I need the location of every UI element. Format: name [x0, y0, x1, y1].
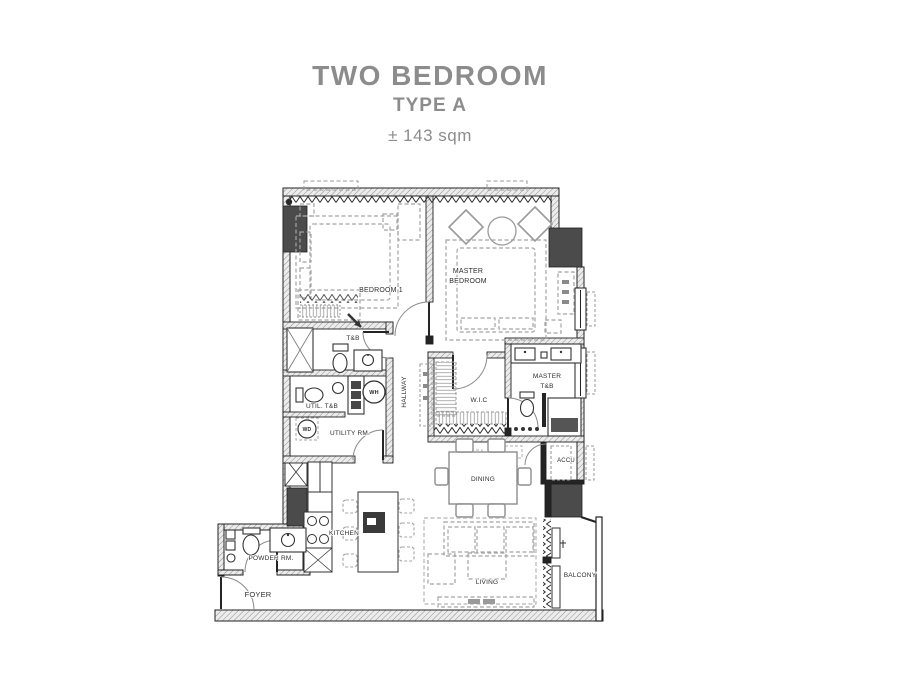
- lavatory-icon: [354, 350, 382, 371]
- counter-icon: [308, 492, 332, 512]
- sink-cabinet-icon: [304, 548, 332, 572]
- master-tb-fixtures: [511, 344, 581, 436]
- label-wic: W.I.C: [471, 397, 488, 404]
- pillow-icon: [499, 318, 533, 329]
- master-bedroom-door: [395, 302, 429, 336]
- label-wh: WH: [369, 390, 379, 396]
- stove-icon: [304, 512, 332, 548]
- dining-chair-icon: [518, 468, 531, 485]
- bed-icon: [446, 240, 546, 340]
- bedroom1-furniture: [296, 204, 420, 320]
- label-master-tb-1: MASTER: [533, 373, 561, 380]
- sink-icon: [333, 383, 344, 394]
- pillow-icon: [300, 268, 311, 298]
- window-ledge-3: [586, 446, 594, 480]
- planter-icon: [552, 528, 560, 558]
- label-utility-rm: UTILITY RM.: [330, 430, 370, 437]
- stool-icon: [343, 500, 357, 513]
- label-wd: WD: [303, 427, 312, 433]
- dining-chair-icon: [456, 439, 473, 452]
- label-living: LIVING: [476, 579, 499, 586]
- label-bedroom-1: BEDROOM 1: [359, 287, 403, 294]
- label-util-tb: UTIL. T&B: [306, 403, 338, 410]
- balcony-railing: [581, 517, 602, 621]
- clothes-rack-icon: [436, 362, 456, 416]
- sink-icon: [515, 348, 535, 360]
- rug-icon: [424, 518, 536, 604]
- sofa-icon: [444, 522, 534, 556]
- planter-icon: [552, 566, 560, 608]
- shower-icon: [287, 328, 313, 372]
- label-master-bedroom-1: MASTER: [453, 268, 483, 275]
- toilet-tank-icon: [333, 344, 348, 351]
- toilet-tank-icon: [243, 528, 260, 534]
- toilet-icon: [305, 388, 323, 402]
- label-accu: ACCU: [557, 458, 575, 464]
- toilet-icon: [243, 535, 259, 555]
- window-right-1: [575, 288, 586, 330]
- toilet-icon: [521, 400, 534, 417]
- dining-chair-icon: [456, 504, 473, 517]
- fridge-icon: [308, 462, 332, 492]
- lavatory-icon: [270, 528, 306, 552]
- column-balcony: [551, 484, 582, 517]
- wic-door: [453, 355, 487, 389]
- window-ledge-2: [587, 352, 595, 394]
- chair-icon: [545, 320, 561, 333]
- balcony-slider-1: [543, 519, 551, 557]
- curtain-wall-top: [290, 196, 552, 203]
- tv-console-icon: [438, 597, 534, 607]
- lounge-chair-icon: [518, 207, 552, 241]
- living-furniture: [424, 518, 536, 607]
- label-powder-rm: POWDER RM.: [249, 555, 294, 562]
- balcony-fixtures: [552, 528, 566, 608]
- dresser-icon: [558, 272, 574, 314]
- label-balcony: BALCONY: [564, 572, 597, 579]
- label-master-bedroom-2: BEDROOM: [449, 278, 487, 285]
- shelf-cabinet-icon: [348, 376, 364, 414]
- clothes-rack-icon: [436, 412, 506, 424]
- toilet-icon: [333, 354, 347, 373]
- label-foyer: FOYER: [245, 590, 272, 599]
- label-master-tb-2: T&B: [540, 383, 553, 390]
- stool-icon: [343, 554, 357, 567]
- label-hallway: HALLWAY: [401, 376, 408, 408]
- coffee-table-icon: [468, 553, 506, 579]
- stool-icon: [399, 499, 414, 513]
- armchair-icon: [428, 554, 455, 584]
- stool-icon: [399, 523, 414, 537]
- column-top-right: [549, 228, 582, 267]
- column-top-left: [283, 206, 307, 252]
- toilet-tank-icon: [296, 388, 303, 402]
- kitchen-island-icon: [358, 492, 398, 572]
- kitchen-fixtures: [304, 462, 398, 572]
- label-dining: DINING: [471, 476, 495, 483]
- side-table-icon: [488, 217, 516, 245]
- balcony-slider-2: [543, 563, 551, 608]
- lounge-chair-icon: [449, 210, 483, 244]
- floorplan-page: TWO BEDROOM TYPE A ± 143 sqm: [0, 0, 900, 700]
- pillow-icon: [461, 318, 495, 329]
- dining-chair-icon: [435, 468, 448, 485]
- label-kitchen: KITCHEN: [329, 530, 359, 537]
- dining-chair-icon: [488, 504, 505, 517]
- floor-plan-drawing: BEDROOM 1 MASTER BEDROOM T&B HALLWAY W.I…: [0, 0, 900, 700]
- toilet-tank-icon: [520, 392, 534, 398]
- label-tb: T&B: [346, 335, 359, 342]
- stool-icon: [399, 547, 414, 561]
- desk-icon: [398, 204, 420, 240]
- sink-icon: [551, 348, 571, 360]
- window-ledge-1: [587, 292, 595, 326]
- dining-chair-icon: [488, 439, 505, 452]
